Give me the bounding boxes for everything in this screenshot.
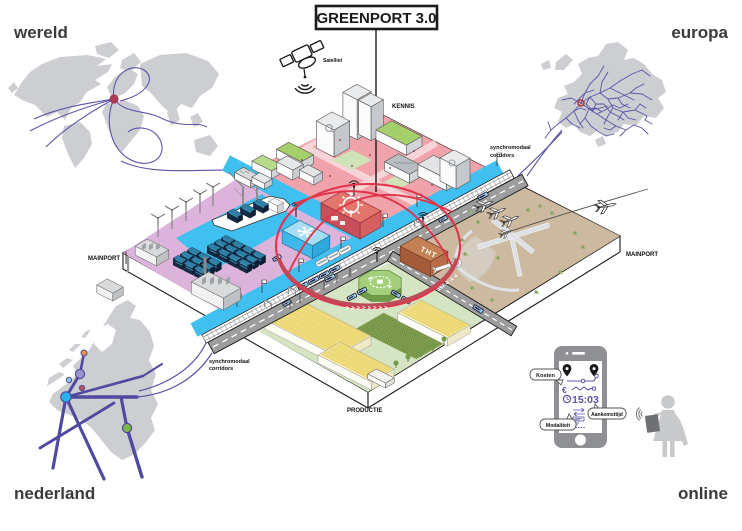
svg-text:Aankomsttijd: Aankomsttijd [591, 412, 623, 418]
svg-text:synchromodaal: synchromodaal [209, 359, 250, 365]
svg-text:€: € [562, 385, 567, 395]
svg-text:MAINPORT: MAINPORT [626, 252, 658, 258]
svg-text:GREENPORT 3.0: GREENPORT 3.0 [316, 10, 436, 27]
svg-text:nederland: nederland [14, 484, 95, 503]
svg-text:europa: europa [671, 23, 728, 42]
svg-text:Modaliteit: Modaliteit [546, 423, 570, 429]
svg-text:MAINPORT: MAINPORT [88, 256, 120, 262]
svg-text:corridors: corridors [209, 366, 233, 372]
svg-text:PRODUCTIE: PRODUCTIE [347, 408, 382, 414]
svg-text:synchromodaal: synchromodaal [490, 145, 531, 151]
svg-text:online: online [678, 484, 728, 503]
svg-text:KENNIS: KENNIS [392, 104, 415, 110]
svg-text:Kosten: Kosten [536, 373, 555, 379]
svg-text:wereld: wereld [13, 23, 68, 42]
svg-text:corridors: corridors [490, 153, 514, 159]
svg-text:Satelliet: Satelliet [323, 58, 343, 64]
